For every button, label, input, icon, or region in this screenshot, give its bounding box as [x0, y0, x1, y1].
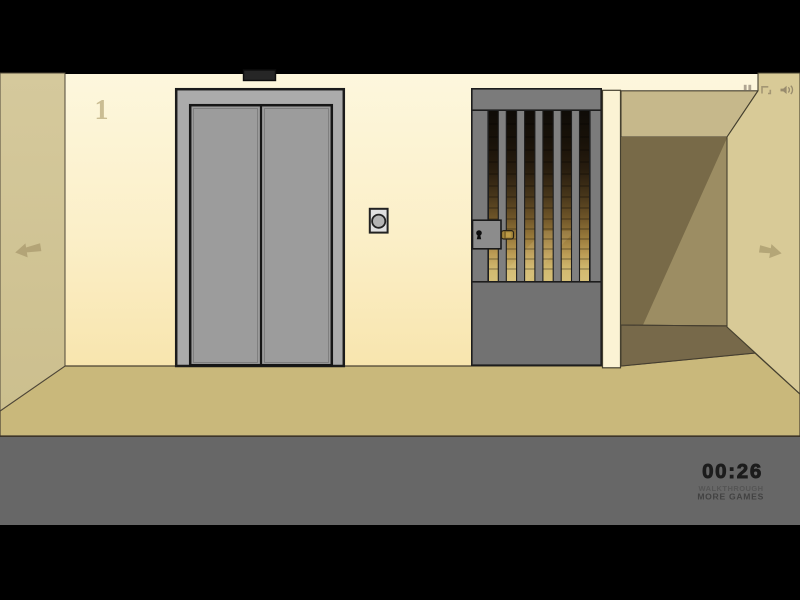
svg-text:00:26: 00:26 — [702, 460, 763, 483]
svg-text:1: 1 — [95, 95, 109, 126]
svg-text:MORE GAMES: MORE GAMES — [697, 492, 764, 502]
